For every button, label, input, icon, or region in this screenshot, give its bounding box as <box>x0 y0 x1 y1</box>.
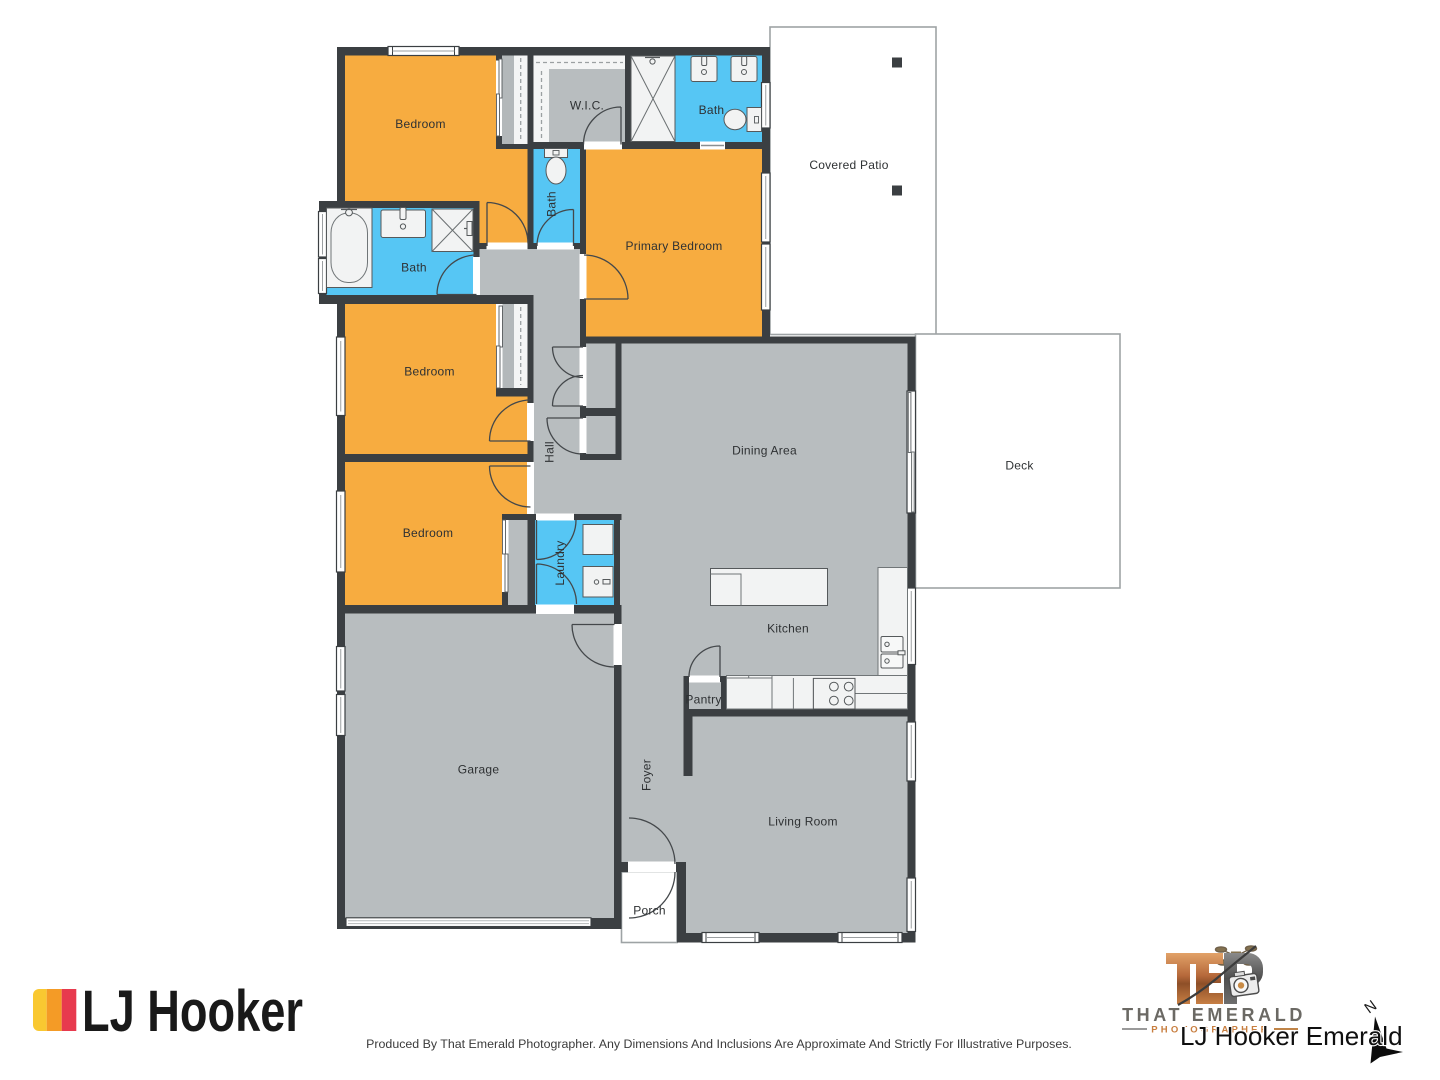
svg-text:Dining Area: Dining Area <box>732 444 797 458</box>
svg-text:Living Room: Living Room <box>768 815 837 829</box>
svg-text:Hall: Hall <box>543 441 557 463</box>
svg-text:Pantry: Pantry <box>685 693 721 707</box>
svg-text:Covered Patio: Covered Patio <box>809 158 888 172</box>
svg-text:Garage: Garage <box>458 763 500 777</box>
svg-text:LJ Hooker Emerald: LJ Hooker Emerald <box>1180 1021 1403 1051</box>
svg-text:Produced By That Emerald Photo: Produced By That Emerald Photographer. A… <box>366 1037 1072 1051</box>
svg-text:Bath: Bath <box>699 103 725 117</box>
svg-text:W.I.C.: W.I.C. <box>570 99 604 113</box>
svg-text:LJ Hooker: LJ Hooker <box>82 979 303 1044</box>
svg-text:Bedroom: Bedroom <box>404 365 454 379</box>
svg-text:Bath: Bath <box>401 261 427 275</box>
svg-text:Primary Bedroom: Primary Bedroom <box>625 239 722 253</box>
svg-text:Laundry: Laundry <box>553 540 567 585</box>
svg-text:Kitchen: Kitchen <box>767 622 809 636</box>
svg-text:Porch: Porch <box>633 904 666 918</box>
svg-text:Bath: Bath <box>545 191 559 217</box>
svg-text:Deck: Deck <box>1005 459 1034 473</box>
svg-text:Bedroom: Bedroom <box>403 526 453 540</box>
svg-text:Foyer: Foyer <box>640 759 654 791</box>
svg-text:Bedroom: Bedroom <box>395 117 445 131</box>
